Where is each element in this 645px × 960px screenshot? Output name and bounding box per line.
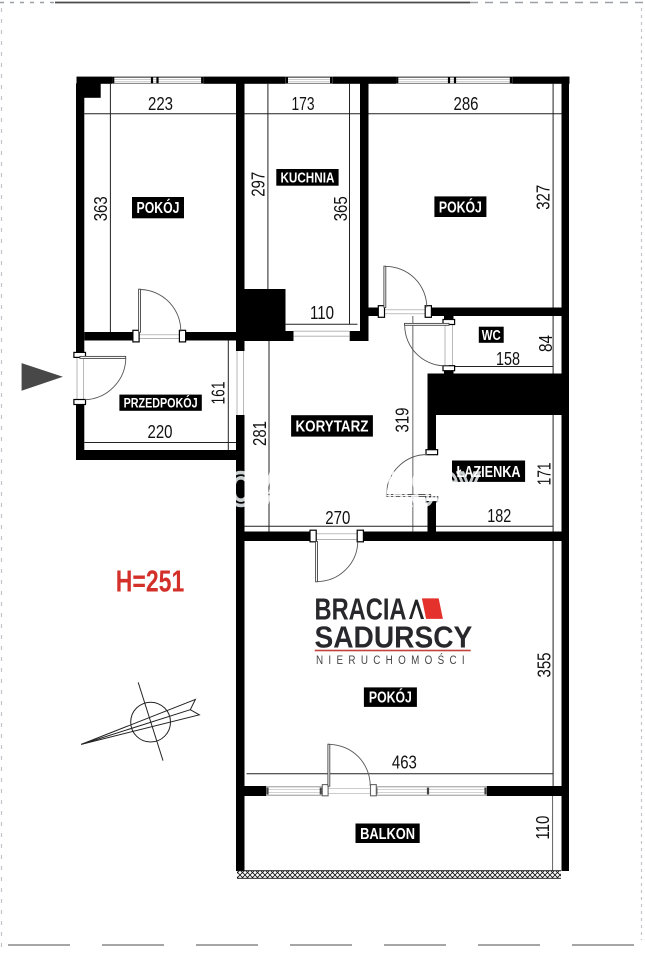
svg-text:POKÓJ: POKÓJ [137,199,180,217]
svg-text:463: 463 [392,752,417,772]
svg-text:PRZEDPOKÓJ: PRZEDPOKÓJ [124,396,198,411]
svg-text:POKÓJ: POKÓJ [439,198,482,216]
svg-text:158: 158 [496,349,520,369]
svg-text:319: 319 [392,408,412,433]
svg-text:84: 84 [536,335,556,352]
svg-text:297: 297 [248,172,268,197]
svg-text:WC: WC [482,328,501,344]
svg-text:171: 171 [534,462,554,485]
svg-text:BRACIA SADURSCY: BRACIA SADURSCY [156,463,480,515]
svg-text:110: 110 [310,303,334,323]
svg-text:161: 161 [209,382,229,405]
svg-text:363: 363 [91,196,111,221]
svg-text:KUCHNIA: KUCHNIA [280,171,334,187]
svg-text:BALKON: BALKON [360,826,415,843]
svg-text:KORYTARZ: KORYTARZ [296,419,369,436]
svg-text:281: 281 [250,421,270,446]
svg-text:223: 223 [148,94,173,114]
svg-text:327: 327 [533,185,553,210]
svg-text:365: 365 [331,196,351,221]
svg-text:POKÓJ: POKÓJ [369,689,412,707]
svg-text:H=251: H=251 [116,564,185,599]
svg-text:182: 182 [487,506,511,526]
svg-text:NIERUCHOMOŚCI: NIERUCHOMOŚCI [316,654,470,667]
svg-text:355: 355 [534,653,554,678]
svg-text:110: 110 [533,816,553,840]
svg-text:173: 173 [292,94,315,114]
svg-text:SADURSCY: SADURSCY [315,620,473,655]
svg-text:286: 286 [454,94,479,114]
svg-text:220: 220 [148,422,173,442]
